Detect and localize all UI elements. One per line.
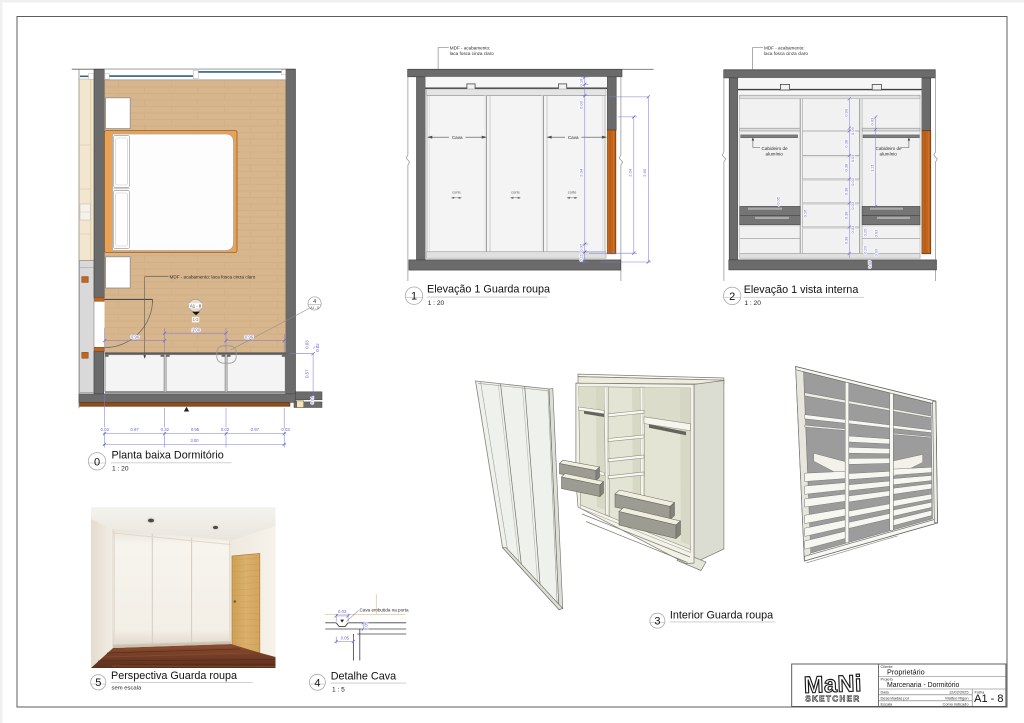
svg-text:1 : 20: 1 : 20 — [428, 300, 445, 307]
svg-text:0.03: 0.03 — [338, 609, 347, 614]
svg-text:2.60: 2.60 — [642, 168, 647, 177]
svg-text:laca fosca cinza claro: laca fosca cinza claro — [450, 51, 494, 56]
svg-text:Data: Data — [881, 689, 890, 694]
svg-text:Planta baixa Dormitório: Planta baixa Dormitório — [112, 450, 224, 462]
svg-text:A1 - 8: A1 - 8 — [310, 306, 319, 310]
svg-text:0.03: 0.03 — [850, 154, 855, 163]
svg-text:Cava: Cava — [568, 135, 579, 140]
svg-text:0.03: 0.03 — [850, 127, 855, 136]
svg-text:Cabideiro de: Cabideiro de — [876, 146, 902, 151]
svg-text:MDF - acabamento:: MDF - acabamento: — [450, 45, 491, 50]
svg-text:sem escala: sem escala — [112, 685, 143, 691]
svg-text:2: 2 — [729, 291, 735, 303]
svg-text:0.96: 0.96 — [131, 335, 140, 340]
svg-text:1: 1 — [411, 291, 417, 303]
svg-text:Cava: Cava — [452, 135, 463, 140]
svg-text:0.90: 0.90 — [843, 108, 848, 117]
svg-text:0.20: 0.20 — [863, 245, 868, 254]
svg-text:0: 0 — [94, 456, 100, 468]
svg-text:0.05: 0.05 — [364, 621, 369, 630]
svg-text:corte: corte — [511, 190, 520, 195]
svg-text:A1 - 8: A1 - 8 — [190, 303, 202, 308]
svg-text:0.57: 0.57 — [305, 369, 310, 378]
svg-text:-0.05: -0.05 — [776, 196, 781, 206]
svg-text:2.04: 2.04 — [628, 168, 633, 177]
svg-text:1.21: 1.21 — [870, 163, 875, 172]
svg-text:Cabideiro de: Cabideiro de — [762, 146, 788, 151]
svg-text:1 : 20: 1 : 20 — [744, 300, 761, 307]
svg-text:Como indicado: Como indicado — [943, 701, 969, 706]
svg-text:0.03: 0.03 — [850, 177, 855, 186]
svg-text:0.38: 0.38 — [843, 187, 848, 196]
svg-text:5: 5 — [95, 677, 101, 689]
svg-text:0.05: 0.05 — [341, 636, 350, 641]
svg-text:0.03: 0.03 — [101, 427, 110, 432]
svg-text:0.05: 0.05 — [867, 260, 872, 269]
svg-text:0.10: 0.10 — [578, 78, 583, 87]
svg-text:Cava embutida na porta: Cava embutida na porta — [360, 608, 409, 613]
svg-text:0.03: 0.03 — [578, 100, 583, 109]
svg-text:0.97: 0.97 — [251, 427, 260, 432]
svg-text:0.03: 0.03 — [850, 201, 855, 210]
svg-text:0.38: 0.38 — [843, 211, 848, 220]
svg-text:1.00: 1.00 — [192, 327, 201, 332]
svg-text:1 : 20: 1 : 20 — [112, 466, 129, 473]
svg-text:4: 4 — [313, 299, 316, 305]
svg-text:alumínio: alumínio — [880, 151, 898, 156]
svg-text:0.97: 0.97 — [130, 427, 139, 432]
svg-text:0.38: 0.38 — [843, 163, 848, 172]
svg-text:0.03: 0.03 — [870, 117, 875, 126]
svg-text:Matteo Rigon: Matteo Rigon — [945, 695, 968, 700]
svg-text:0.11: 0.11 — [578, 253, 583, 261]
svg-text:0.02: 0.02 — [221, 427, 230, 432]
svg-text:Marcenaria - Dormitório: Marcenaria - Dormitório — [887, 682, 960, 689]
svg-text:0.95: 0.95 — [191, 427, 200, 432]
svg-text:0.03: 0.03 — [281, 427, 290, 432]
svg-text:0.16: 0.16 — [803, 209, 808, 218]
svg-text:Elevação 1 vista interna: Elevação 1 vista interna — [744, 284, 859, 296]
svg-text:0.38: 0.38 — [843, 236, 848, 245]
svg-text:Elevação 1 Guarda roupa: Elevação 1 Guarda roupa — [427, 284, 550, 296]
svg-text:Detalhe Cava: Detalhe Cava — [331, 671, 396, 683]
svg-text:3: 3 — [654, 616, 660, 628]
svg-text:0.03: 0.03 — [850, 225, 855, 234]
svg-text:1 : 5: 1 : 5 — [332, 686, 345, 693]
svg-text:0.38: 0.38 — [843, 139, 848, 148]
svg-text:Interior Guarda roupa: Interior Guarda roupa — [670, 609, 773, 621]
svg-text:corte: corte — [568, 190, 577, 195]
svg-text:0.96: 0.96 — [245, 335, 254, 340]
svg-text:SKETCHER: SKETCHER — [805, 695, 860, 704]
svg-text:Desenhadas por: Desenhadas por — [881, 695, 910, 700]
svg-text:0.02: 0.02 — [578, 243, 583, 252]
svg-text:Projeto: Projeto — [881, 677, 893, 682]
svg-text:Escala: Escala — [881, 701, 894, 706]
svg-text:0.03: 0.03 — [874, 248, 879, 257]
svg-text:laca fosca cinza claro: laca fosca cinza claro — [764, 51, 808, 56]
svg-text:0.02: 0.02 — [315, 343, 320, 352]
svg-text:alumínio: alumínio — [766, 151, 784, 156]
svg-text:0.20: 0.20 — [863, 228, 868, 237]
svg-text:Proprietário: Proprietário — [887, 668, 925, 677]
svg-text:corte: corte — [452, 190, 461, 195]
svg-text:3.00: 3.00 — [190, 438, 199, 443]
svg-text:MDF - acabamento: laca fosca c: MDF - acabamento: laca fosca cinza claro — [170, 274, 256, 279]
svg-text:0.01: 0.01 — [309, 396, 314, 405]
svg-text:12/02/2025: 12/02/2025 — [949, 689, 968, 694]
svg-text:A1 - 8: A1 - 8 — [974, 693, 1003, 705]
svg-text:1-2: 1-2 — [193, 317, 200, 322]
svg-text:4: 4 — [314, 677, 320, 689]
svg-text:0.03: 0.03 — [874, 229, 879, 238]
svg-text:MDF - acabamento:: MDF - acabamento: — [764, 45, 805, 50]
svg-text:Perspectiva Guarda roupa: Perspectiva Guarda roupa — [111, 670, 237, 682]
svg-text:0.32: 0.32 — [161, 427, 170, 432]
svg-text:0.03: 0.03 — [305, 340, 310, 349]
svg-text:2.04: 2.04 — [578, 168, 583, 177]
